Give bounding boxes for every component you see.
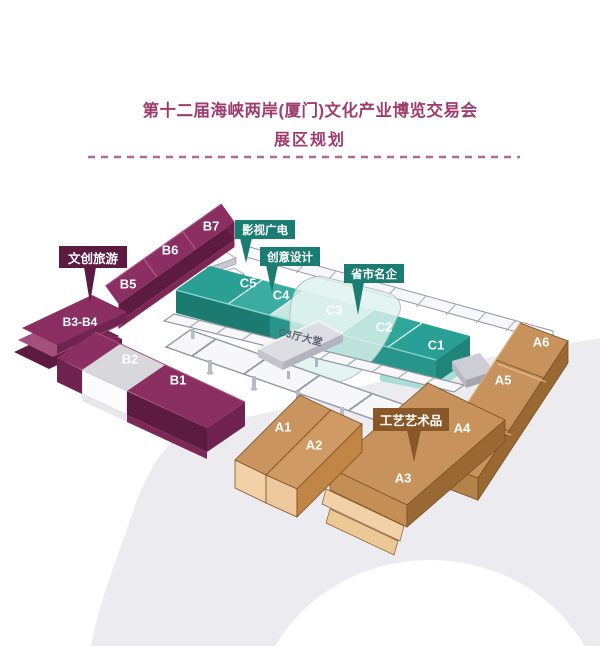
flag-film-tv-pointer: [240, 238, 252, 263]
hall-label-a1: A1: [275, 420, 292, 435]
hall-label-c5: C5: [240, 276, 257, 291]
hall-label-a6: A6: [533, 335, 550, 350]
page-title: 第十二届海峡两岸(厦门)文化产业博览交易会: [20, 97, 600, 121]
hall-label-a3: A3: [395, 471, 412, 486]
flag-provincial-enterprises-pointer: [352, 282, 364, 315]
hall-label-a5: A5: [495, 373, 512, 388]
flag-crafts-art-pointer: [407, 430, 421, 462]
page-subtitle: 展区规划: [20, 126, 600, 150]
flag-culture-tourism: 文创旅游: [59, 246, 127, 268]
flag-crafts-art: 工艺艺术品: [373, 408, 449, 431]
hall-label-a2: A2: [306, 438, 323, 453]
flag-creative-design-label: 创意设计: [267, 249, 313, 265]
hall-label-b7: B7: [203, 219, 220, 234]
flag-provincial-enterprises-label: 省市名企: [351, 266, 397, 282]
flag-creative-design: 创意设计: [260, 247, 320, 266]
flag-culture-tourism-label: 文创旅游: [68, 248, 118, 267]
flag-film-tv: 影视广电: [235, 220, 295, 239]
hall-label-b2: B2: [122, 352, 139, 367]
flag-crafts-art-label: 工艺艺术品: [380, 410, 443, 429]
hall-label-c2: C2: [376, 320, 393, 335]
hall-label-c1: C1: [428, 338, 445, 353]
hall-label-b6: B6: [162, 243, 179, 258]
hall-label-a4: A4: [454, 421, 471, 436]
hall-label-b3-b4: B3-B4: [63, 315, 98, 329]
flag-provincial-enterprises: 省市名企: [344, 264, 404, 283]
hall-label-b5: B5: [120, 277, 137, 292]
flag-film-tv-label: 影视广电: [242, 222, 288, 238]
hall-label-c3: C3: [326, 303, 343, 318]
exhibition-plan-illustration: 第十二届海峡两岸(厦门)文化产业博览交易会 展区规划 文创旅游 影视广电 创意设…: [0, 0, 600, 646]
hall-label-c4: C4: [273, 288, 290, 303]
flag-culture-tourism-pointer: [84, 267, 96, 303]
hall-label-b1: B1: [170, 373, 187, 388]
